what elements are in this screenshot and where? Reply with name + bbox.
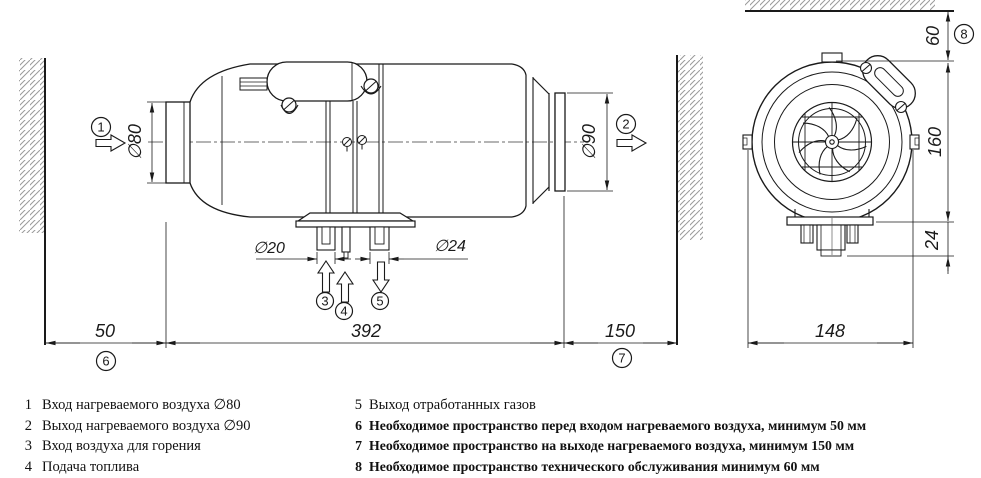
dim-label-50: 50: [95, 321, 115, 341]
bottom-flange: [296, 213, 415, 258]
flow-arrow-5-icon: [373, 262, 389, 292]
intake-nozzle: [166, 102, 190, 183]
dim-label-d80: ∅80: [125, 124, 145, 160]
side-view: ∅80 ∅90 ∅20 ∅24: [19, 55, 703, 348]
right-wall-hatch: [678, 55, 703, 240]
legend-num: 6: [350, 416, 362, 437]
dim-label-148: 148: [815, 321, 845, 341]
legend-num: 5: [350, 395, 362, 416]
callout-7: 7: [613, 349, 632, 368]
legend-column-left: 1 Вход нагреваемого воздуха ∅80 2 Выход …: [20, 395, 340, 477]
svg-text:5: 5: [376, 294, 383, 309]
heater-body-front: [743, 49, 922, 256]
fan-grille: [792, 102, 872, 182]
dim-label-d20: ∅20: [253, 240, 285, 257]
legend-text: Подача топлива: [42, 457, 139, 478]
dim-label-24: 24: [922, 230, 942, 251]
legend-item-1: 1 Вход нагреваемого воздуха ∅80: [20, 395, 340, 416]
flow-arrow-3-icon: [318, 261, 334, 292]
installation-drawing-page: ∅80 ∅90 ∅20 ∅24: [0, 0, 981, 478]
dim-label-d24: ∅24: [434, 238, 466, 255]
front-stub-right: [847, 225, 858, 243]
legend-item-8: 8 Необходимое пространство технического …: [350, 457, 978, 478]
legend-num: 3: [20, 436, 32, 457]
dim-label-d90: ∅90: [579, 124, 599, 160]
svg-text:7: 7: [618, 351, 625, 366]
legend-text: Вход нагреваемого воздуха ∅80: [42, 395, 241, 416]
dim-label-150: 150: [605, 321, 635, 341]
fuel-stub: [342, 227, 350, 252]
legend-item-3: 3 Вход воздуха для горения: [20, 436, 340, 457]
flow-arrow-2-icon: [617, 135, 646, 151]
legend-num: 1: [20, 395, 32, 416]
callout-8: 8: [955, 25, 974, 44]
legend-item-6: 6 Необходимое пространство перед входом …: [350, 416, 978, 437]
legend-text: Выход нагреваемого воздуха ∅90: [42, 416, 251, 437]
legend-num: 7: [350, 436, 362, 457]
legend-num: 4: [20, 457, 32, 478]
callout-2: 2: [617, 115, 636, 134]
clamp-screw-icons: [343, 136, 367, 152]
legend-column-right: 5 Выход отработанных газов 6 Необходимое…: [350, 395, 978, 477]
legend-text: Вход воздуха для горения: [42, 436, 201, 457]
front-stub-left: [801, 225, 813, 243]
legend-item-2: 2 Выход нагреваемого воздуха ∅90: [20, 416, 340, 437]
legend-item-7: 7 Необходимое пространство на выходе наг…: [350, 436, 978, 457]
legend-text: Необходимое пространство технического об…: [369, 457, 820, 478]
dim-intake-diameter: [147, 102, 167, 183]
svg-text:8: 8: [960, 27, 967, 42]
dim-label-160: 160: [925, 127, 945, 157]
outlet-nozzle: [555, 93, 565, 191]
inlet-stub-icon: [240, 78, 267, 90]
right-tab: [910, 135, 919, 149]
front-view: 60 160 24 148: [743, 0, 954, 348]
fan-hub: [826, 136, 839, 149]
legend-item-4: 4 Подача топлива: [20, 457, 340, 478]
flow-arrow-4-icon: [337, 272, 353, 302]
front-flange: [787, 217, 873, 225]
legend-item-5: 5 Выход отработанных газов: [350, 395, 978, 416]
left-wall-hatch: [19, 58, 45, 233]
svg-text:2: 2: [622, 117, 629, 132]
svg-text:6: 6: [102, 354, 109, 369]
flow-arrow-1-icon: [96, 135, 125, 151]
svg-text:4: 4: [340, 304, 347, 319]
callout-4: 4: [336, 303, 353, 320]
legend-num: 2: [20, 416, 32, 437]
legend-text: Выход отработанных газов: [369, 395, 536, 416]
ceiling-hatch: [745, 0, 935, 11]
callout-5: 5: [372, 293, 389, 310]
dim-label-392: 392: [351, 321, 381, 341]
legend-num: 8: [350, 457, 362, 478]
legend-text: Необходимое пространство перед входом на…: [369, 416, 866, 437]
front-view-dimensions: [748, 12, 954, 348]
left-tab: [743, 135, 752, 149]
carry-handle: [856, 49, 921, 114]
callout-6: 6: [97, 352, 116, 371]
svg-text:1: 1: [97, 120, 104, 135]
legend-text: Необходимое пространство на выходе нагре…: [369, 436, 854, 457]
callout-1: 1: [92, 118, 111, 137]
svg-text:3: 3: [321, 294, 328, 309]
dim-label-60: 60: [923, 26, 943, 46]
top-cover-unit: [240, 62, 381, 114]
callout-3: 3: [317, 293, 334, 310]
